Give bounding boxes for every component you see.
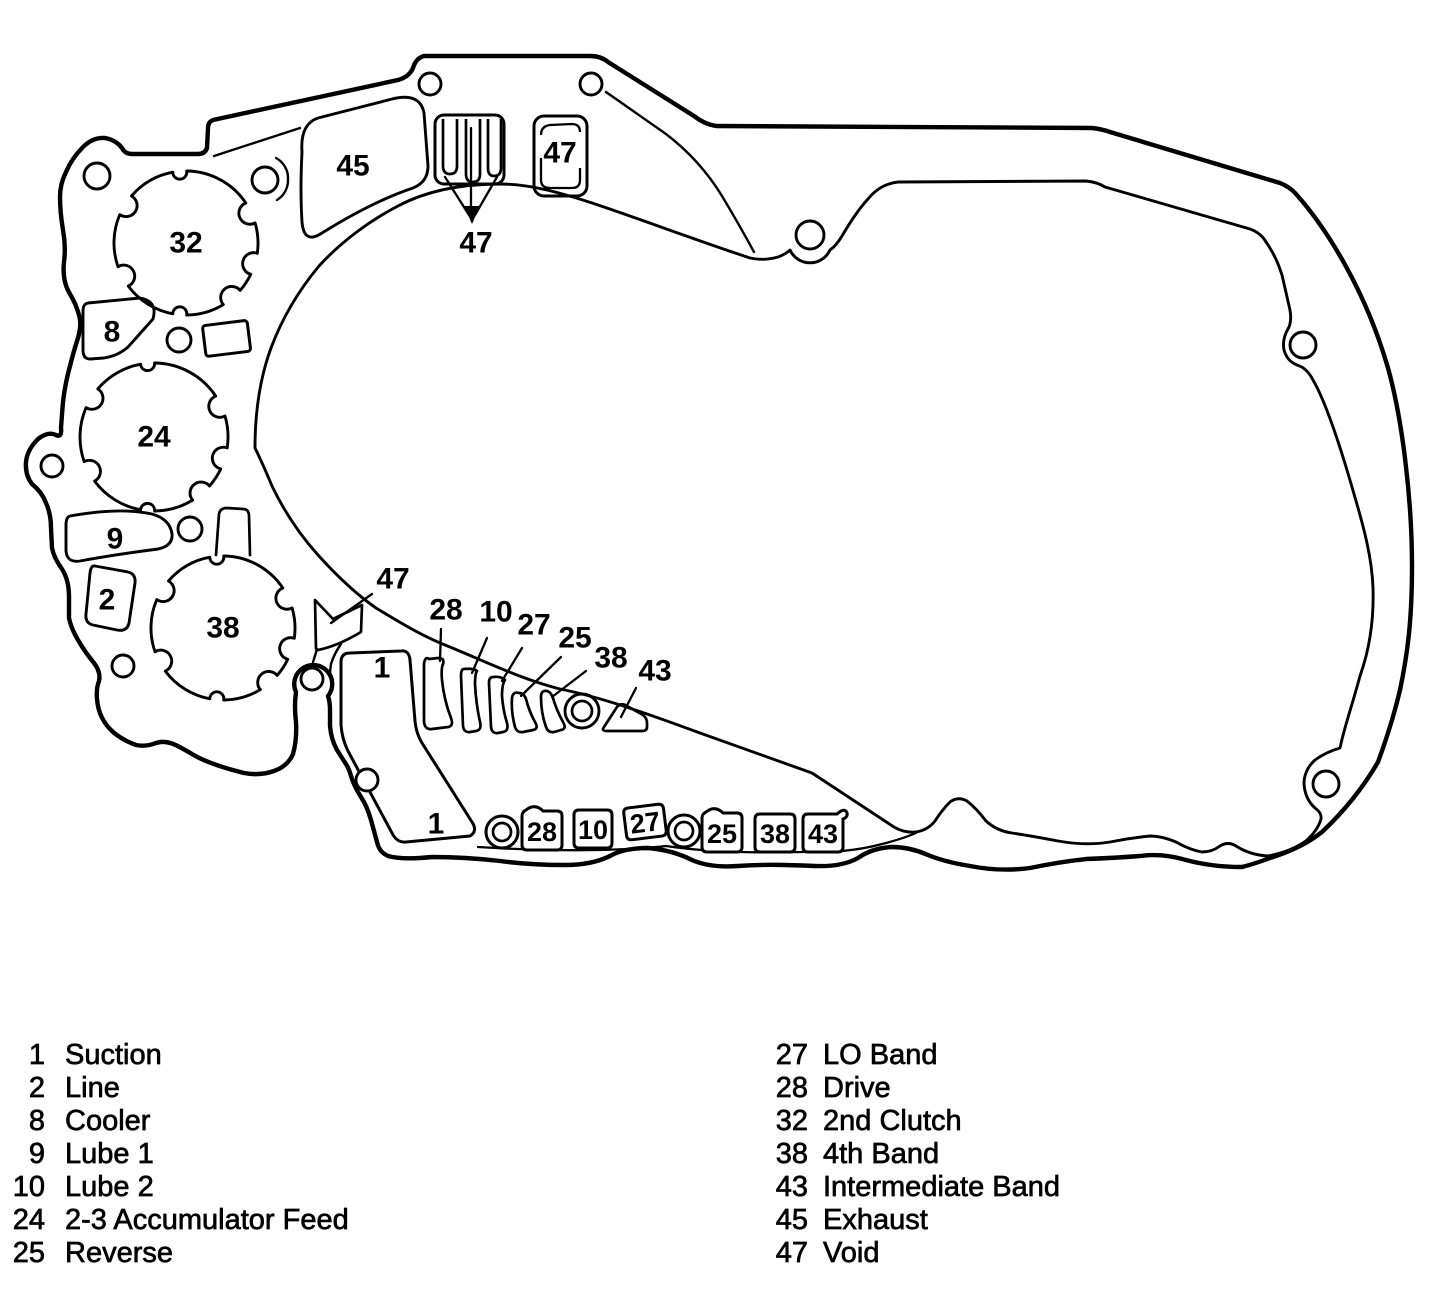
svg-text:Void: Void [823, 1237, 879, 1269]
svg-text:Intermediate Band: Intermediate Band [823, 1171, 1060, 1203]
svg-text:38: 38 [594, 642, 627, 675]
svg-text:27: 27 [776, 1039, 808, 1071]
svg-text:2: 2 [99, 584, 116, 617]
svg-text:47: 47 [776, 1237, 808, 1269]
svg-text:27: 27 [517, 609, 550, 642]
svg-text:28: 28 [776, 1072, 808, 1104]
svg-text:45: 45 [776, 1204, 808, 1236]
svg-text:27: 27 [628, 806, 661, 839]
svg-text:Suction: Suction [65, 1039, 162, 1071]
svg-text:9: 9 [107, 523, 124, 556]
svg-text:9: 9 [29, 1138, 45, 1170]
svg-text:38: 38 [206, 612, 239, 645]
svg-text:Drive: Drive [823, 1072, 891, 1104]
svg-text:1: 1 [29, 1039, 45, 1071]
svg-text:28: 28 [527, 817, 557, 847]
svg-text:47: 47 [376, 563, 409, 596]
svg-text:Lube 2: Lube 2 [65, 1171, 154, 1203]
svg-text:25: 25 [707, 819, 737, 849]
svg-text:Exhaust: Exhaust [823, 1204, 928, 1236]
svg-text:Line: Line [65, 1072, 120, 1104]
svg-text:28: 28 [429, 594, 462, 627]
svg-text:47: 47 [459, 227, 492, 260]
svg-text:25: 25 [13, 1237, 45, 1269]
svg-text:47: 47 [543, 137, 576, 170]
svg-text:32: 32 [776, 1105, 808, 1137]
svg-text:2-3 Accumulator Feed: 2-3 Accumulator Feed [65, 1204, 349, 1236]
svg-text:1: 1 [374, 652, 391, 685]
svg-text:10: 10 [13, 1171, 45, 1203]
svg-text:8: 8 [29, 1105, 45, 1137]
svg-text:10: 10 [479, 596, 512, 629]
svg-text:38: 38 [776, 1138, 808, 1170]
svg-text:32: 32 [169, 227, 202, 260]
svg-text:2: 2 [29, 1072, 45, 1104]
svg-text:43: 43 [776, 1171, 808, 1203]
svg-text:Reverse: Reverse [65, 1237, 173, 1269]
svg-text:38: 38 [760, 819, 790, 849]
svg-text:43: 43 [808, 819, 838, 849]
svg-text:1: 1 [428, 808, 445, 841]
svg-text:LO Band: LO Band [823, 1039, 937, 1071]
svg-text:4th Band: 4th Band [823, 1138, 939, 1170]
svg-text:25: 25 [558, 622, 591, 655]
svg-text:24: 24 [137, 421, 171, 454]
svg-text:10: 10 [578, 815, 608, 845]
svg-text:8: 8 [104, 316, 121, 349]
svg-text:Cooler: Cooler [65, 1105, 151, 1137]
svg-text:Lube 1: Lube 1 [65, 1138, 154, 1170]
svg-text:43: 43 [638, 655, 671, 688]
svg-text:45: 45 [336, 150, 369, 183]
svg-text:2nd Clutch: 2nd Clutch [823, 1105, 962, 1137]
svg-text:24: 24 [13, 1204, 45, 1236]
